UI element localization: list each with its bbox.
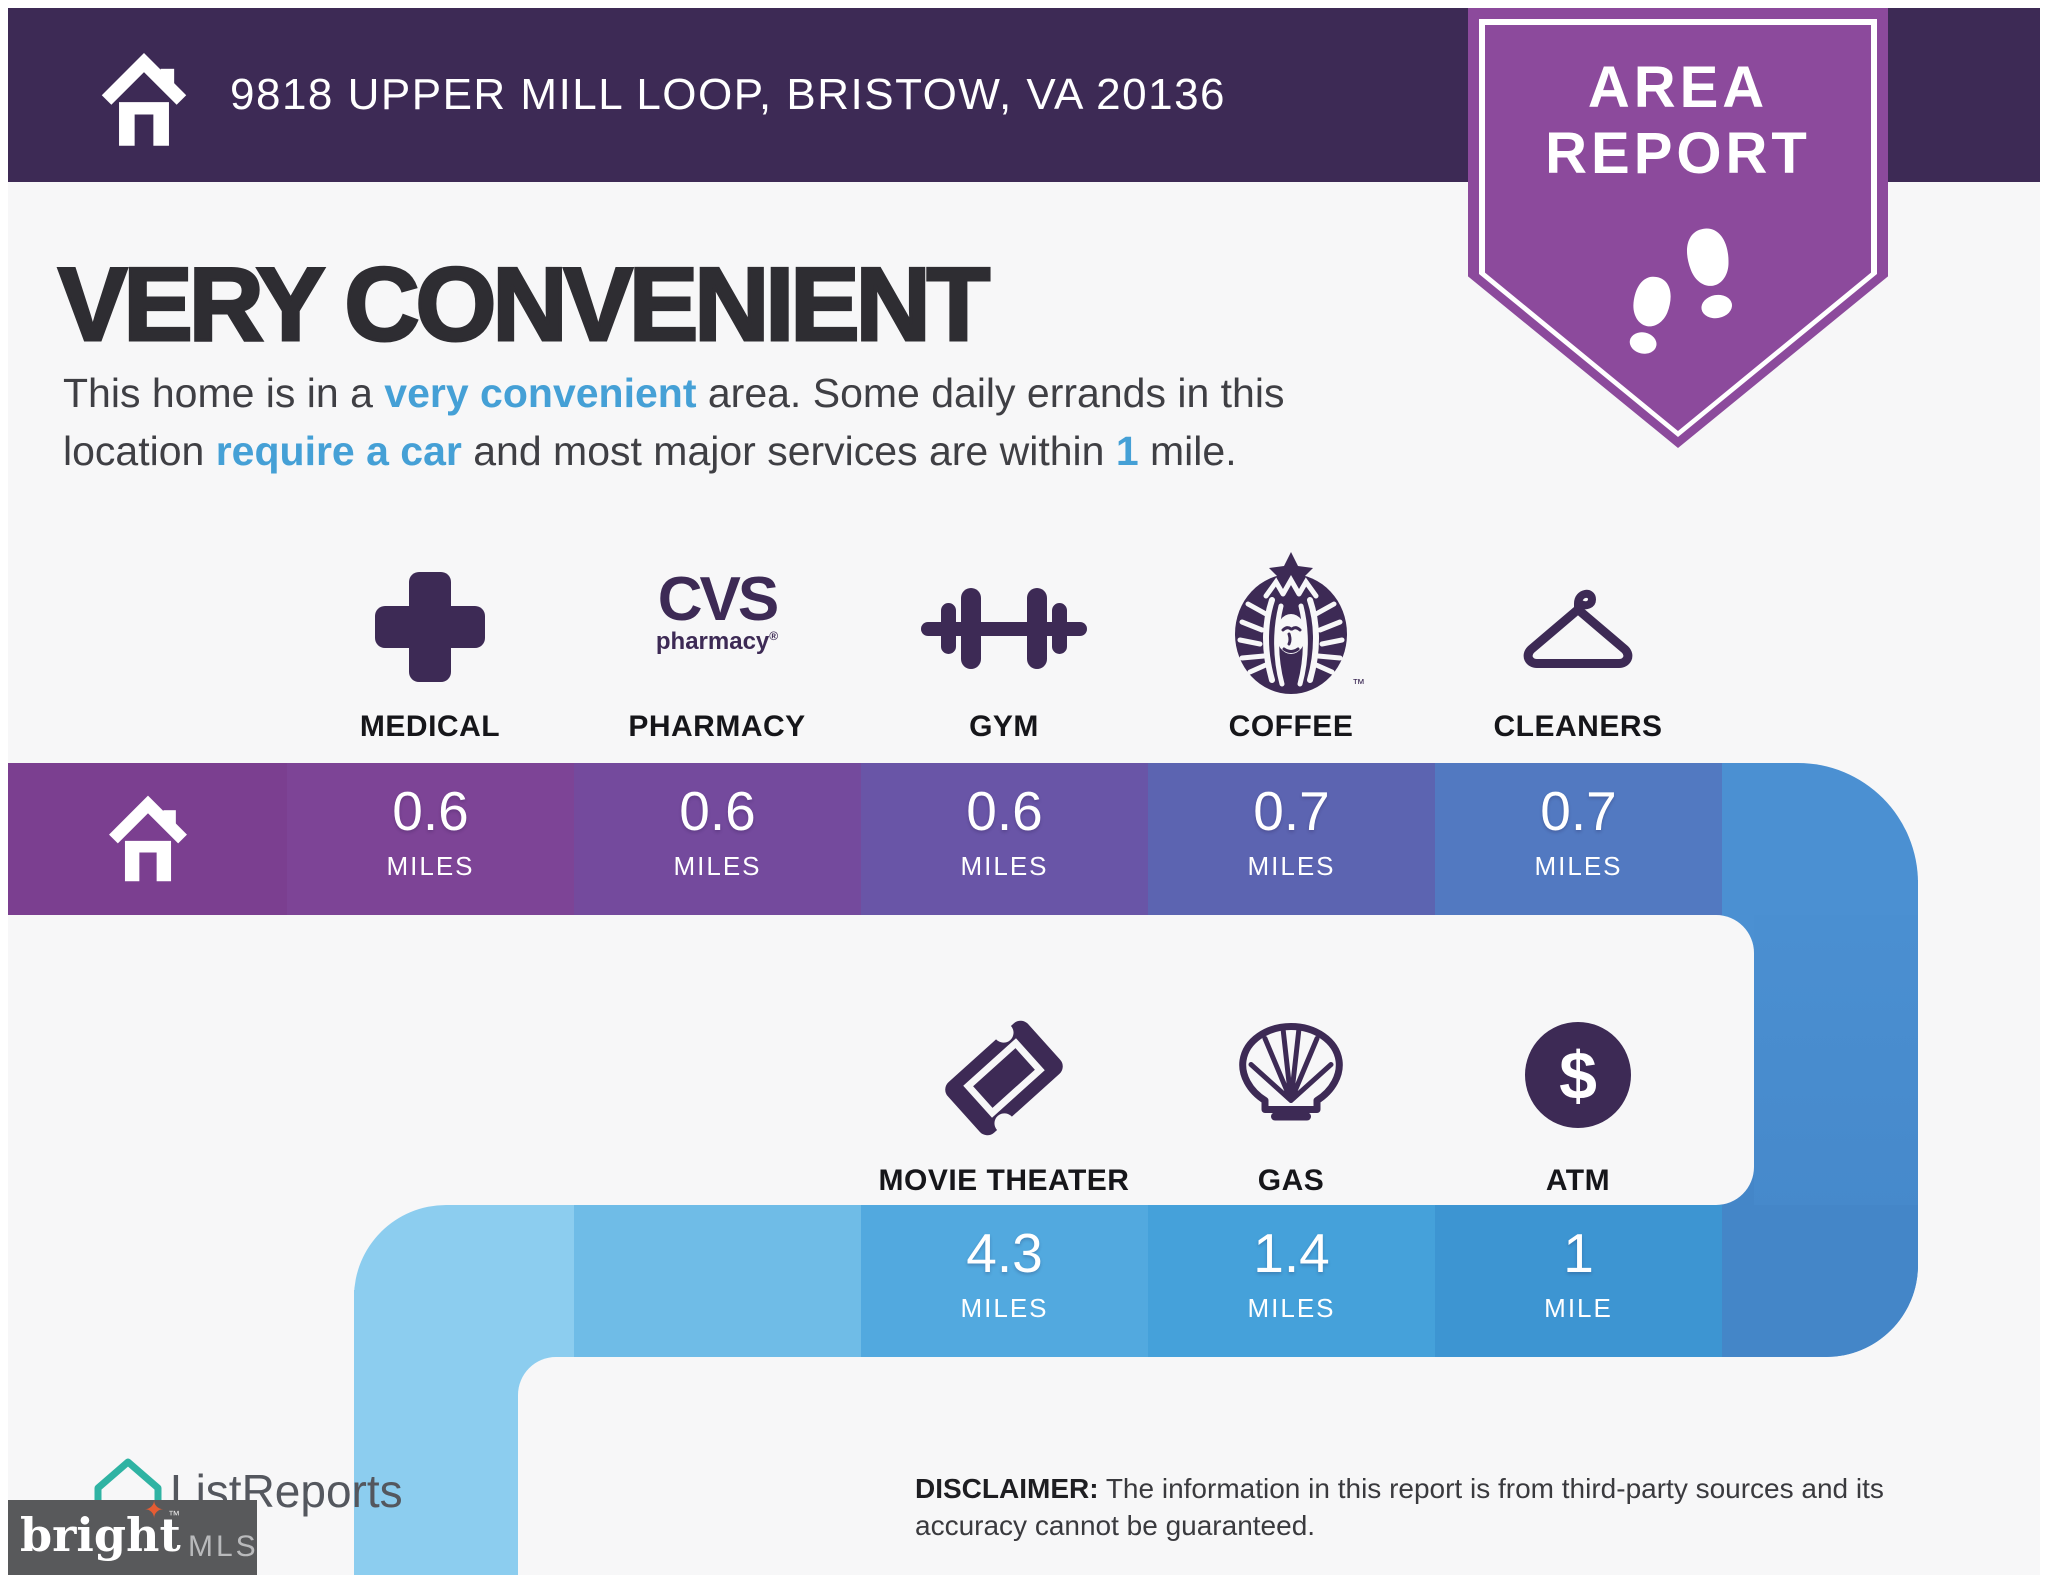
badge-title-line2: REPORT [1468, 120, 1888, 187]
home-icon [100, 789, 196, 889]
badge-title-line1: AREA [1468, 54, 1888, 121]
category-label-atm: ATM [1398, 1164, 1758, 1198]
description-line: location require a car and most major se… [63, 422, 1284, 480]
description-text: This home is in a very convenient area. … [63, 364, 1284, 480]
ticket-icon [924, 998, 1084, 1158]
distance-cell-atm: 1 MILE [1435, 1205, 1722, 1357]
cvs-pharmacy-text: pharmacy® [607, 628, 827, 656]
path-column-segment [1722, 1205, 1918, 1357]
distance-value: 0.6 [574, 779, 861, 843]
brightmls-trademark: ™ [168, 1508, 180, 1522]
category-label-cleaners: CLEANERS [1398, 710, 1758, 744]
distance-value: 0.7 [1435, 779, 1722, 843]
home-marker-cell [8, 763, 287, 915]
dumbbell-icon [919, 576, 1089, 681]
home-icon [92, 42, 196, 158]
page-title: VERY CONVENIENT [58, 246, 986, 365]
distance-value: 0.6 [287, 779, 574, 843]
cvs-logo-text: CVS [607, 572, 827, 628]
distance-unit: MILES [861, 1293, 1148, 1324]
footprints-icon [1601, 216, 1755, 402]
distance-value: 1.4 [1148, 1221, 1435, 1285]
disclaimer-label: DISCLAIMER: [915, 1473, 1099, 1504]
cvs-pharmacy-logo: CVS pharmacy® [607, 572, 827, 656]
path-curve-segment [354, 1205, 574, 1357]
distance-cell-pharmacy: 0.6 MILES [574, 763, 861, 915]
frame-margin [0, 0, 2048, 8]
distance-bar-row2: 4.3 MILES 1.4 MILES 1 MILE [354, 1205, 1918, 1357]
brightmls-suffix: MLS [188, 1530, 259, 1564]
registered-mark: ® [769, 629, 778, 643]
dollar-symbol: $ [1559, 1038, 1597, 1114]
medical-cross-icon [365, 562, 495, 692]
distance-unit: MILE [1435, 1293, 1722, 1324]
distance-value: 0.6 [861, 779, 1148, 843]
frame-margin [0, 0, 8, 1583]
distance-cell-coffee: 0.7 MILES [1148, 763, 1435, 915]
area-report-infographic: 9818 UPPER MILL LOOP, BRISTOW, VA 20136 … [0, 0, 2048, 1583]
property-address: 9818 UPPER MILL LOOP, BRISTOW, VA 20136 [230, 8, 1226, 182]
distance-unit: MILES [1148, 1293, 1435, 1324]
disclaimer-text: DISCLAIMER: The information in this repo… [915, 1470, 1995, 1544]
frame-margin [0, 1575, 2048, 1583]
shell-gas-logo [1231, 1014, 1351, 1134]
distance-unit: MILES [574, 851, 861, 882]
path-tail-segment [1722, 763, 1918, 915]
distance-unit: MILES [861, 851, 1148, 882]
distance-cell-movie-theater: 4.3 MILES [861, 1205, 1148, 1357]
frame-margin [2040, 0, 2048, 1583]
distance-unit: MILES [1435, 851, 1722, 882]
distance-value: 0.7 [1148, 779, 1435, 843]
dollar-circle-icon: $ [1523, 1020, 1633, 1130]
path-lead-segment [574, 1205, 861, 1357]
distance-value: 4.3 [861, 1221, 1148, 1285]
area-report-badge: AREA REPORT [1468, 8, 1888, 448]
distance-unit: MILES [1148, 851, 1435, 882]
distance-cell-gym: 0.6 MILES [861, 763, 1148, 915]
brightmls-star-icon: ✦ [144, 1496, 164, 1525]
brightmls-logo: bright ✦ ™ MLS [8, 1500, 257, 1583]
distance-bar-row1: 0.6 MILES 0.6 MILES 0.6 MILES 0.7 MILES … [8, 763, 1918, 915]
distance-cell-medical: 0.6 MILES [287, 763, 574, 915]
distance-cell-cleaners: 0.7 MILES [1435, 763, 1722, 915]
hanger-icon [1513, 566, 1643, 684]
trademark-symbol: ™ [1352, 676, 1365, 691]
distance-cell-gas: 1.4 MILES [1148, 1205, 1435, 1357]
distance-unit: MILES [287, 851, 574, 882]
description-line: This home is in a very convenient area. … [63, 364, 1284, 422]
starbucks-siren-logo [1224, 548, 1358, 698]
path-inner-notch-left [518, 1357, 778, 1583]
distance-value: 1 [1435, 1221, 1722, 1285]
